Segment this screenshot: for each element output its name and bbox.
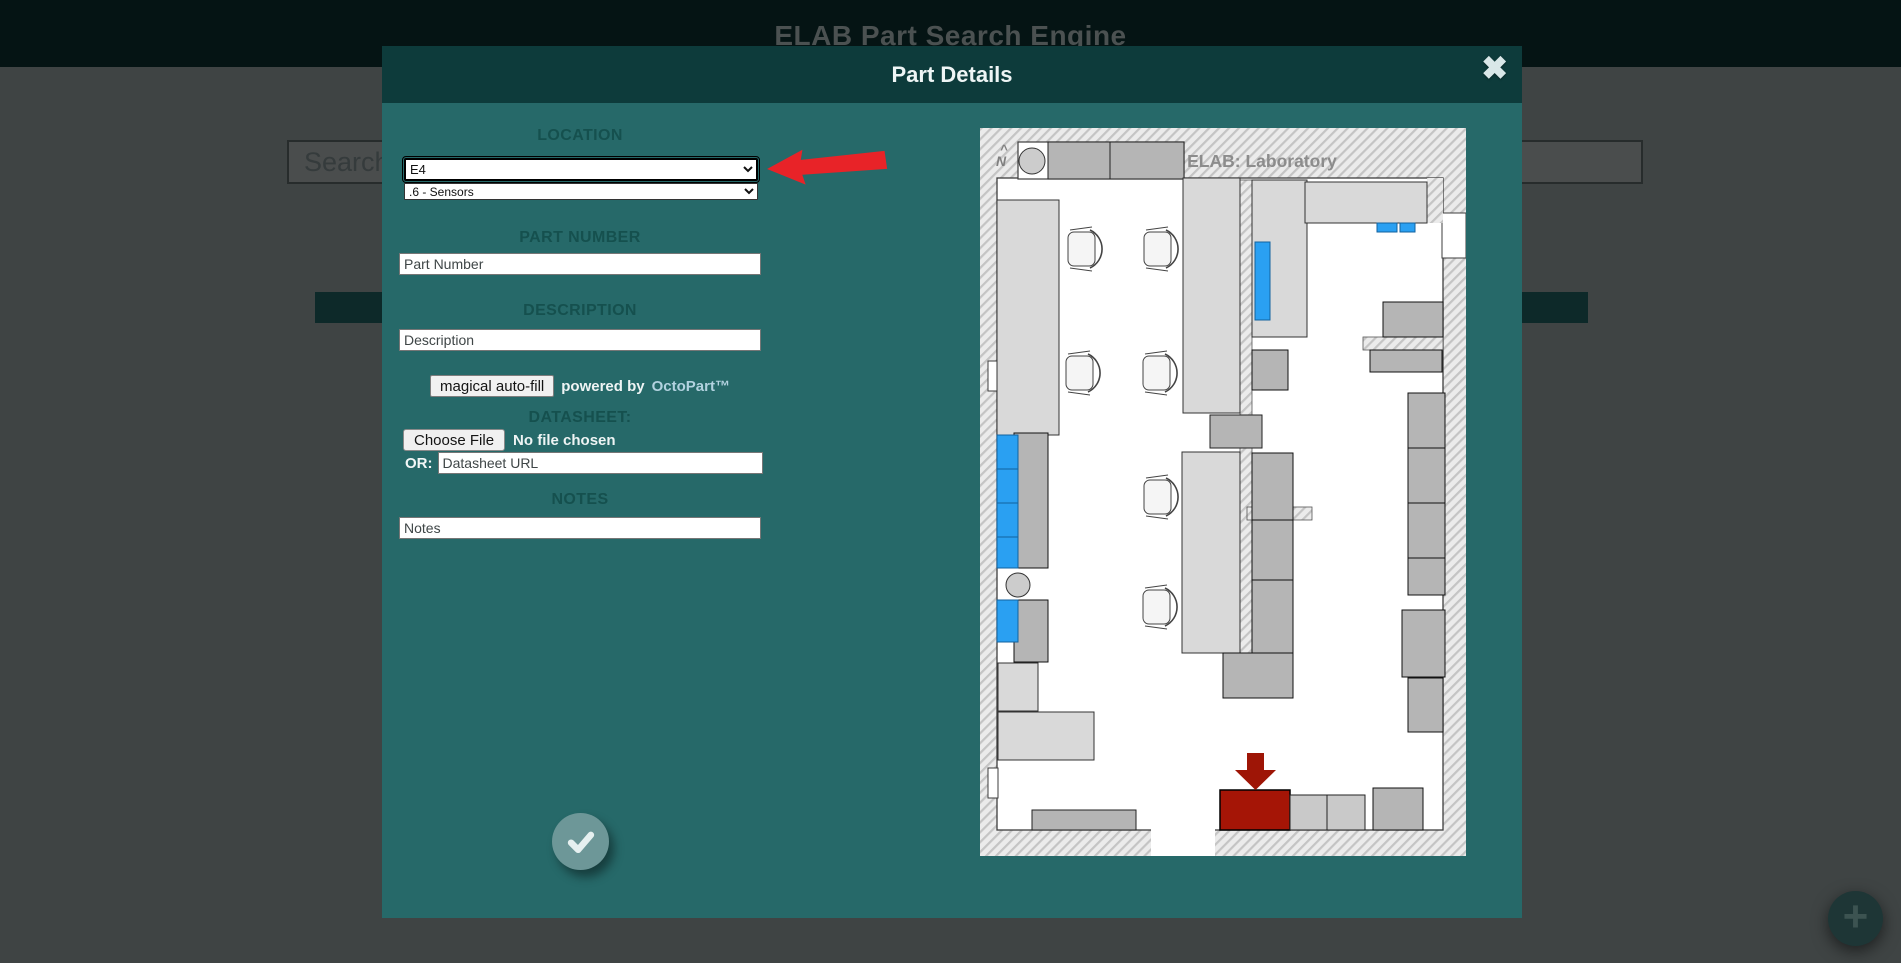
cabinet — [1110, 142, 1184, 179]
description-label: DESCRIPTION — [399, 302, 761, 320]
powered-by-text: powered by — [561, 378, 644, 395]
or-label: OR: — [405, 455, 433, 472]
highlight-blue-rack — [1255, 242, 1270, 320]
part-number-input[interactable] — [399, 253, 761, 275]
datasheet-url-input[interactable] — [438, 452, 763, 474]
bench-lower-left — [998, 663, 1038, 711]
cabinet-right — [1402, 610, 1445, 677]
cabinet-center — [1252, 350, 1288, 390]
annotation-arrow-icon — [765, 146, 890, 186]
cabinet-left — [1014, 433, 1048, 568]
floorplan-image: ELAB: Laboratory ^ N — [980, 128, 1466, 856]
datasheet-label: DATASHEET: — [399, 409, 761, 427]
location-shelf-select[interactable]: .6 - Sensors — [404, 183, 758, 200]
cabinet-right — [1383, 302, 1443, 337]
modal-title: Part Details — [891, 62, 1012, 88]
cabinet-bottom — [1327, 795, 1365, 830]
cabinet-bottom-left — [1032, 810, 1136, 830]
cabinet-right — [1408, 678, 1443, 732]
autofill-row: magical auto-fill powered by OctoPart™ — [399, 375, 761, 397]
cabinet-right — [1408, 393, 1445, 448]
stool-top — [1019, 148, 1045, 174]
bench-top-right — [1305, 182, 1427, 223]
highlight-blue-bin — [1377, 223, 1397, 232]
datasheet-file-row: Choose File No file chosen — [403, 429, 616, 451]
bench-center-upper — [1183, 178, 1240, 413]
cabinet — [1048, 142, 1110, 179]
highlight-blue-shelves — [997, 435, 1018, 568]
cabinet-center — [1252, 580, 1293, 653]
bench-left — [997, 200, 1059, 435]
plus-icon: + — [1843, 895, 1869, 939]
modal-header: Part Details — [382, 46, 1522, 103]
wall-strip-right — [1363, 337, 1443, 350]
map-title: ELAB: Laboratory — [1187, 151, 1337, 171]
description-input[interactable] — [399, 329, 761, 351]
cabinet-center — [1252, 453, 1293, 520]
wall-step-topright — [1427, 178, 1443, 223]
cabinet-center — [1252, 520, 1293, 580]
part-details-modal: Part Details ✖ LOCATION E4 .6 - Sensors … — [382, 46, 1522, 918]
bench-connector — [1210, 415, 1262, 448]
selected-location-box — [1220, 790, 1290, 830]
add-part-fab[interactable]: + — [1828, 891, 1883, 946]
choose-file-button[interactable]: Choose File — [403, 429, 505, 451]
cabinet-right — [1408, 558, 1445, 595]
cabinet-right — [1408, 503, 1445, 558]
wall-bottom — [980, 830, 1466, 856]
check-icon — [564, 825, 598, 859]
door-recess-right — [1442, 213, 1466, 258]
search-input-value: Search — [304, 147, 390, 178]
bench-lower-left-l — [998, 712, 1094, 760]
cabinet-bottom — [1290, 795, 1327, 830]
highlight-blue-bin — [1400, 223, 1415, 232]
magical-autofill-button[interactable]: magical auto-fill — [430, 375, 554, 397]
highlight-blue-shelves — [997, 600, 1018, 642]
cabinet-center-bottom — [1223, 653, 1293, 698]
notes-label: NOTES — [399, 491, 761, 509]
notes-input[interactable] — [399, 517, 761, 539]
doorway-bottom — [1151, 829, 1215, 856]
close-icon[interactable]: ✖ — [1481, 52, 1508, 84]
cabinet-right — [1370, 350, 1442, 372]
stool-left — [1006, 573, 1030, 597]
north-icon: N — [996, 153, 1007, 169]
door-jog-left-2 — [988, 768, 998, 798]
location-map[interactable]: ELAB: Laboratory ^ N — [980, 128, 1466, 856]
octopart-link[interactable]: OctoPart™ — [652, 378, 730, 395]
cabinet-right — [1408, 448, 1445, 503]
cabinet-bottom — [1373, 788, 1423, 830]
part-number-label: PART NUMBER — [399, 229, 761, 247]
wall-left — [980, 128, 997, 856]
location-area-select[interactable]: E4 — [404, 158, 758, 181]
location-label: LOCATION — [399, 127, 761, 145]
cabinet-left — [1014, 600, 1048, 662]
submit-button[interactable] — [552, 813, 609, 870]
file-status-text: No file chosen — [513, 432, 616, 449]
bench-center-lower — [1182, 452, 1240, 653]
datasheet-url-row: OR: — [405, 452, 763, 474]
